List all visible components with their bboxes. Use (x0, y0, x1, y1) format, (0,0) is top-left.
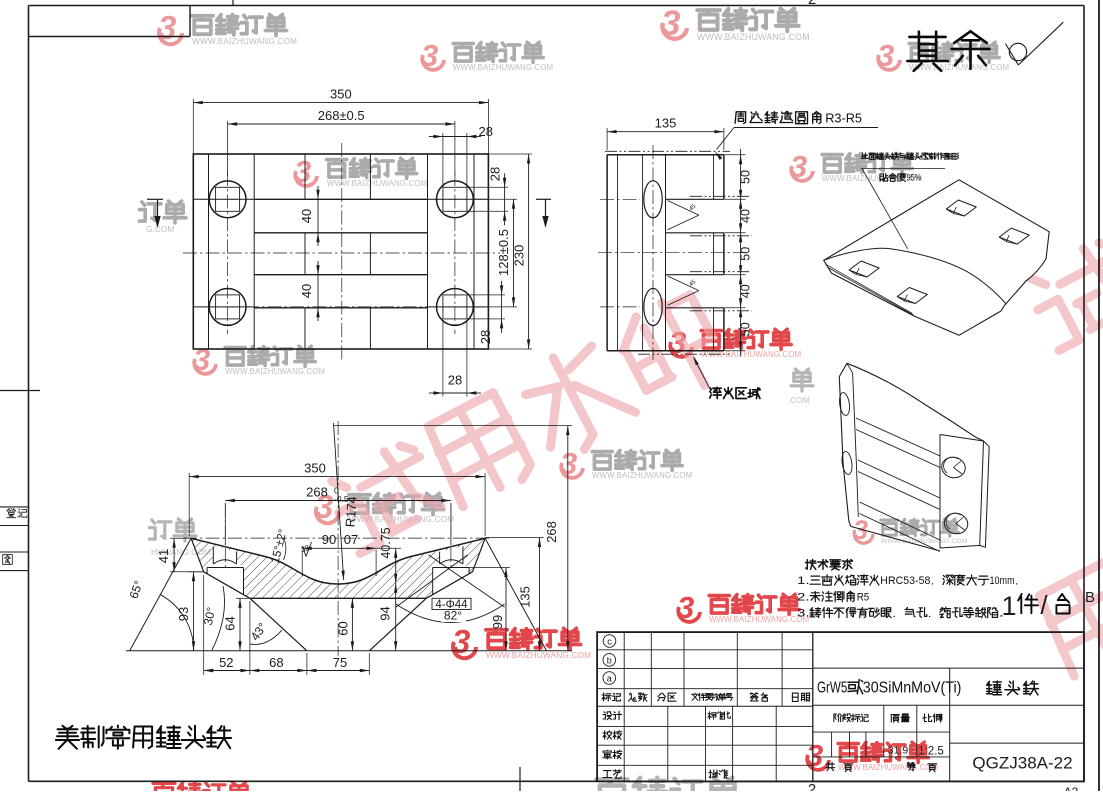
svg-text:350: 350 (304, 461, 326, 476)
svg-text:30SiMnMoV(Ti): 30SiMnMoV(Ti) (863, 679, 962, 696)
svg-text:c: c (607, 637, 612, 647)
svg-text:90: 90 (322, 532, 336, 547)
svg-text:128±0.5: 128±0.5 (496, 229, 511, 276)
svg-text:1: 1 (1001, 591, 1016, 621)
svg-text:41: 41 (156, 549, 171, 563)
svg-text:WWW.BAIZHUWANG.COM: WWW.BAIZHUWANG.COM (192, 37, 297, 46)
svg-text:268±0.5: 268±0.5 (318, 108, 365, 123)
svg-text:230: 230 (512, 245, 527, 267)
svg-text:WWW.BAIZHUWANG.COM: WWW.BAIZHUWANG.COM (697, 32, 810, 42)
svg-text:/: / (1040, 590, 1048, 620)
svg-text:40.75: 40.75 (379, 527, 393, 558)
svg-text:WWW.BAIZHUWANG.COM: WWW.BAIZHUWANG.COM (709, 615, 809, 624)
svg-text:99: 99 (490, 615, 505, 629)
svg-text:64: 64 (223, 616, 238, 630)
svg-text:28: 28 (479, 124, 493, 139)
svg-text:60: 60 (336, 621, 351, 635)
svg-text:R3-R5: R3-R5 (825, 110, 862, 125)
svg-text:G.COM: G.COM (146, 224, 174, 234)
svg-text:40: 40 (738, 284, 752, 298)
svg-text:40: 40 (299, 209, 314, 223)
svg-text:40: 40 (299, 284, 314, 298)
svg-text:R5: R5 (857, 592, 870, 604)
svg-text:WWW.BAIZHUWANG.COM: WWW.BAIZHUWANG.COM (909, 63, 1009, 72)
svg-text:75: 75 (333, 655, 347, 670)
svg-text:GrW5: GrW5 (817, 679, 847, 696)
svg-text:A3: A3 (1064, 785, 1079, 791)
svg-text:50: 50 (739, 247, 753, 261)
svg-text:3.: 3. (797, 608, 810, 620)
svg-text:WWW.BAIZHUWANG.COM: WWW.BAIZHUWANG.COM (592, 471, 692, 480)
svg-text:07: 07 (344, 532, 358, 547)
svg-text:a: a (607, 674, 612, 684)
svg-text:28: 28 (488, 167, 503, 181)
svg-text:4-Φ44: 4-Φ44 (435, 599, 468, 611)
svg-text:R174: R174 (342, 496, 359, 528)
svg-text:135: 135 (655, 116, 677, 131)
svg-text:b: b (607, 655, 612, 665)
svg-text:1:2.5: 1:2.5 (918, 746, 944, 758)
svg-text:94: 94 (378, 606, 393, 620)
svg-text:B: B (1085, 589, 1095, 606)
svg-text:50: 50 (739, 170, 753, 184)
svg-text:268: 268 (306, 485, 328, 500)
svg-text:1.: 1. (797, 575, 810, 587)
svg-text:268: 268 (544, 521, 559, 543)
svg-text:WWW.BAIZHUWANG.COM: WWW.BAIZHUWANG.COM (486, 651, 591, 660)
svg-text:2: 2 (808, 0, 816, 8)
svg-text:10mm: 10mm (990, 575, 1015, 587)
svg-text:2.: 2. (797, 592, 810, 604)
svg-text:135: 135 (518, 586, 533, 608)
svg-text:WWW.BAIZHUWANG.COM: WWW.BAIZHUWANG.COM (838, 763, 938, 772)
svg-text:2: 2 (808, 781, 816, 791)
svg-text:68: 68 (269, 655, 283, 670)
svg-text:52: 52 (219, 655, 233, 670)
svg-text:350: 350 (330, 87, 352, 102)
svg-text:.COM: .COM (788, 395, 810, 405)
svg-text:WWW.BAIZHUWANG.COM: WWW.BAIZHUWANG.COM (453, 63, 553, 72)
svg-text:31.9: 31.9 (888, 745, 909, 757)
svg-text:95%: 95% (907, 173, 922, 183)
svg-text:40: 40 (739, 209, 753, 223)
svg-text:50: 50 (739, 322, 753, 336)
svg-text:28: 28 (478, 330, 493, 344)
svg-text:HRC53-58: HRC53-58 (880, 575, 930, 587)
svg-text:WWW.BAIZHUWANG.COM: WWW.BAIZHUWANG.COM (225, 367, 325, 376)
svg-text:28: 28 (448, 373, 462, 388)
svg-text:QGZJ38A-22: QGZJ38A-22 (972, 754, 1072, 773)
